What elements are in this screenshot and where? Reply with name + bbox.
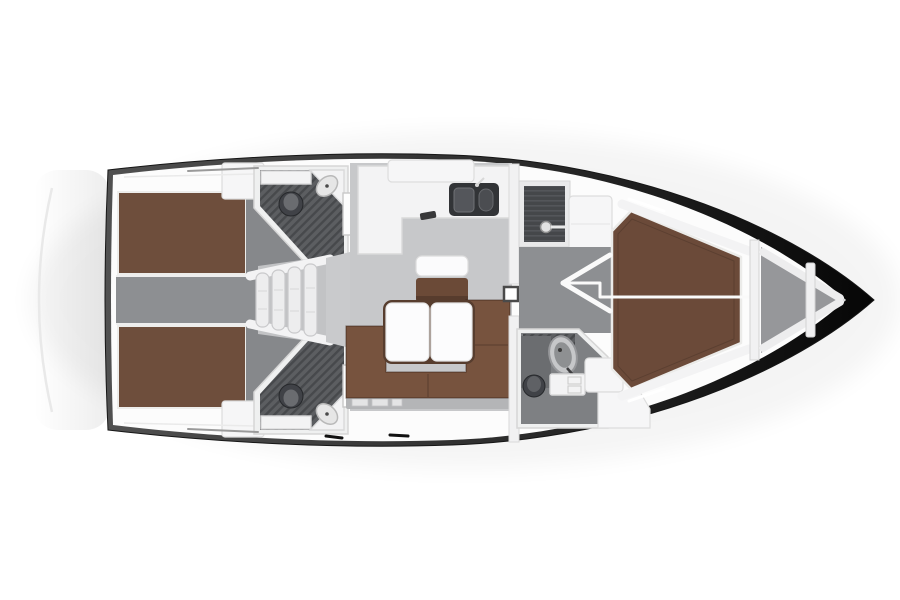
aft-cabin-starboard-berth [118,326,246,408]
drain-icon [325,412,329,416]
toilet-lid-icon [284,390,299,407]
stair-tread [272,270,285,330]
swim-platform [34,170,110,430]
aft-cabin-port-berth [118,192,246,274]
stair-tread [256,273,269,327]
stair-tread [304,264,317,336]
plinth-locker [372,399,388,406]
stair-tread [288,267,301,333]
head-door [343,193,351,235]
head-counter [261,171,311,184]
toilet-lid-icon [284,194,299,211]
salon [326,160,512,411]
aft-corridor [116,277,258,323]
drain-icon [325,184,329,188]
door-latch [504,287,518,301]
table-leaf [431,303,472,361]
shower-grate-floor [524,186,565,242]
head-counter [261,416,311,429]
yacht-floorplan-canvas [0,0,900,600]
faucet-icon [475,183,479,187]
plinth-locker [392,399,402,406]
anchor-locker-bar [806,263,815,337]
shower-head-icon [541,222,552,233]
yacht-floorplan-page [0,0,900,600]
cleat-mark [326,436,342,438]
sink-basin-icon [479,189,493,211]
cleat-mark [390,435,408,436]
toilet-lid-icon [527,376,541,392]
galley-cabinet [388,160,474,182]
shower-room [519,181,570,247]
chart-table-seat [416,256,468,276]
drain-icon [558,348,562,352]
bow-bulkhead [750,240,759,360]
plinth-locker [352,399,368,406]
stern-shadow [34,170,110,430]
bulkhead-wall [509,164,519,284]
companionway [250,256,330,344]
sink-basin-icon [454,188,474,212]
table-leaf [386,303,429,361]
